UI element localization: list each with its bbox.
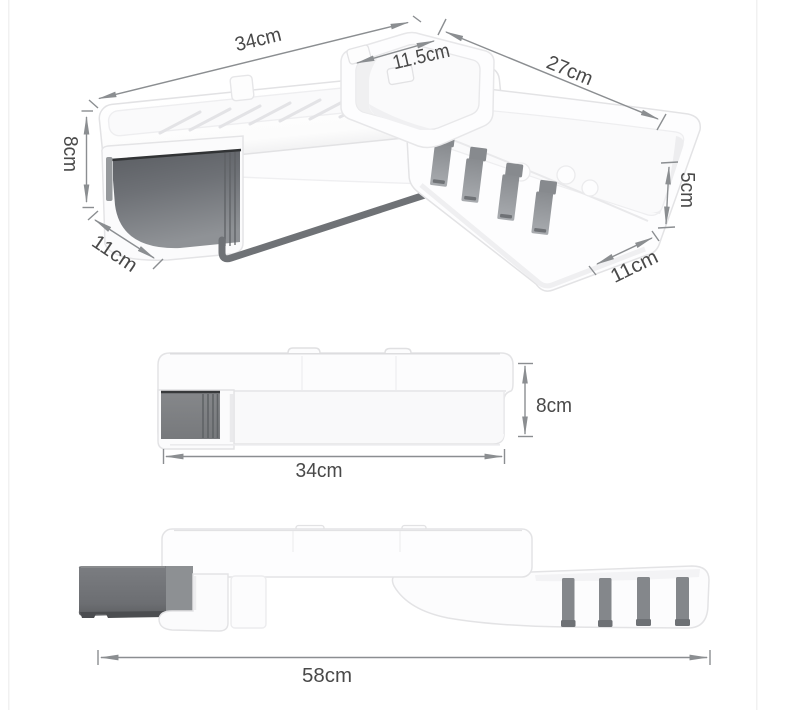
svg-text:8cm: 8cm (536, 395, 572, 417)
svg-text:34cm: 34cm (296, 460, 343, 482)
svg-text:5cm: 5cm (676, 172, 698, 208)
svg-text:58cm: 58cm (302, 665, 352, 687)
svg-text:8cm: 8cm (59, 136, 81, 172)
